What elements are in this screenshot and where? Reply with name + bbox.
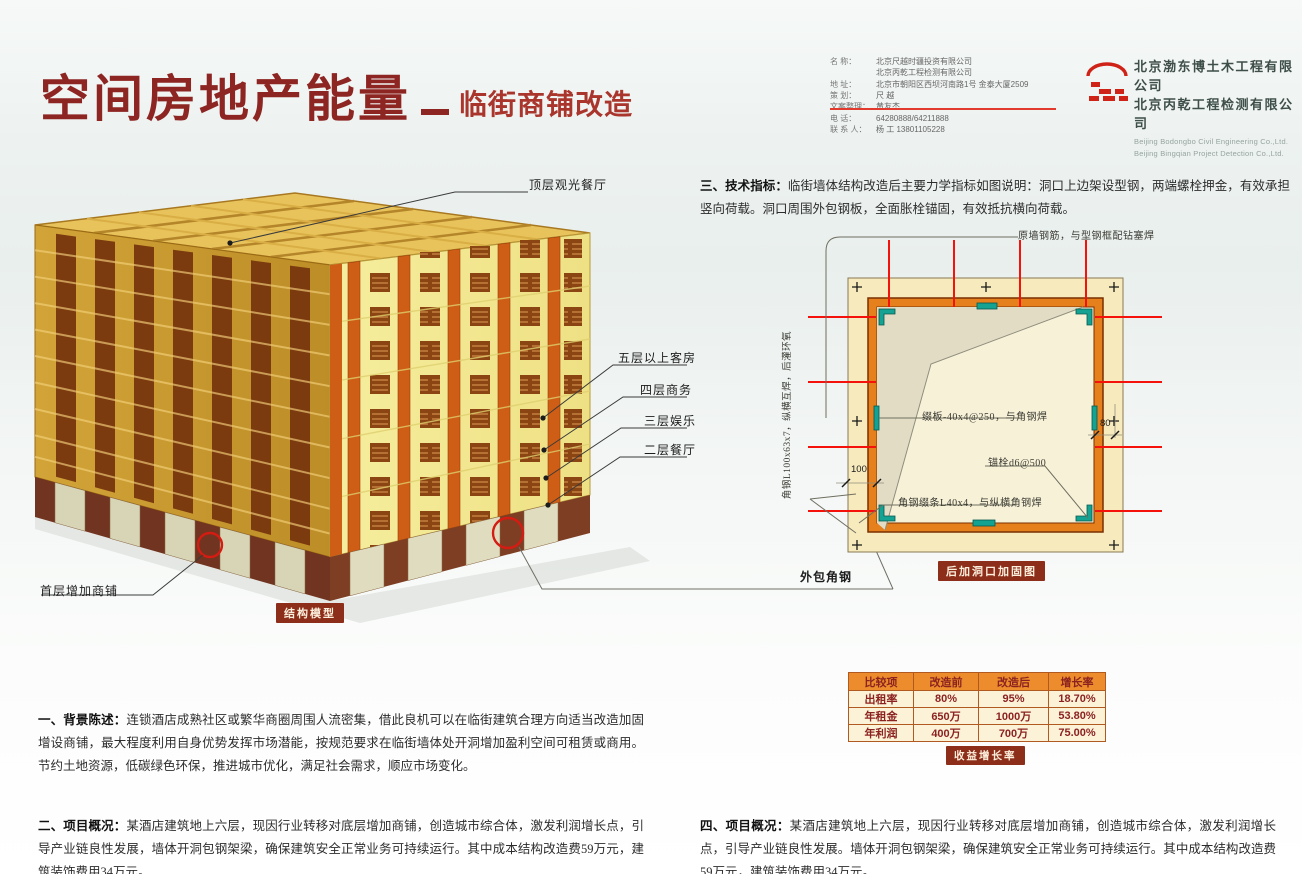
company-cn-1: 北京渤东博土木工程有限公司 (1134, 58, 1302, 96)
company-cn-2: 北京丙乾工程检测有限公司 (1134, 96, 1302, 134)
table-header-row: 比较项 改造前 改造后 增长率 (849, 673, 1106, 691)
tech-paragraph: 三、技术指标：临街墙体结构改造后主要力学指标如图说明：洞口上边架设型钢，两端螺栓… (700, 175, 1290, 220)
dim-80: 80 (1100, 418, 1111, 429)
col-header: 改造后 (979, 673, 1049, 691)
table-row: 出租率 80% 95% 18.70% (849, 691, 1106, 708)
section1-body: 连锁酒店成熟社区或繁华商圈周围人流密集，借此良机可以在临街建筑合理方向适当改造加… (38, 713, 644, 773)
info-row: 联 系 人：杨 工 13801105228 (830, 124, 1058, 135)
dim-100: 100 (851, 464, 867, 475)
info-value: 北京尺越时疆投资有限公司 (876, 56, 972, 67)
cell: 700万 (979, 725, 1049, 742)
company-logo-icon (1084, 56, 1130, 106)
cell: 53.80% (1049, 708, 1106, 725)
cell: 18.70% (1049, 691, 1106, 708)
table-caption: 收益增长率 (946, 746, 1025, 765)
tech-heading: 三、技术指标： (700, 179, 788, 193)
table-row: 年利润 400万 700万 75.00% (849, 725, 1106, 742)
info-value: 北京丙乾工程检测有限公司 (876, 67, 972, 78)
page-title: 空间房地产能量 (40, 74, 411, 124)
info-underline (830, 108, 1056, 110)
cell: 1000万 (979, 708, 1049, 725)
label-floor4: 四层商务 (640, 381, 692, 398)
info-row: 北京丙乾工程检测有限公司 (830, 67, 1058, 78)
ann-angle-steel-vertical: 角钢L100x63x7，纵横互焊，后灌环氧 (779, 265, 793, 565)
section2-heading: 二、项目概况： (38, 819, 126, 833)
cell: 75.00% (1049, 725, 1106, 742)
col-header: 比较项 (849, 673, 914, 691)
info-value: 64280888/64211888 (876, 113, 949, 124)
info-row: 策 划：尺 越 (830, 90, 1058, 101)
poster-root: 空间房地产能量 临街商铺改造 名 称：北京尺越时疆投资有限公司 北京丙乾工程检测… (0, 0, 1302, 874)
info-value: 杨 工 13801105228 (876, 124, 945, 135)
reinforcement-diagram (780, 220, 1200, 582)
corner-pilaster (330, 264, 342, 558)
page-title-group: 空间房地产能量 临街商铺改造 (40, 74, 633, 124)
ann-lacing-bar: 角钢缀条L40x4，与纵横角钢焊 (898, 494, 1042, 509)
section1-heading: 一、背景陈述： (38, 713, 126, 727)
cell: 400万 (914, 725, 979, 742)
info-row: 名 称：北京尺越时疆投资有限公司 (830, 56, 1058, 67)
label-floor3: 三层娱乐 (644, 412, 696, 429)
company-en-1: Beijing Bodongbo Civil Engineering Co.,L… (1134, 136, 1302, 147)
label-ground-floor: 首层增加商铺 (40, 582, 118, 599)
section-background: 一、背景陈述：连锁酒店成熟社区或繁华商圈周围人流密集，借此良机可以在临街建筑合理… (38, 709, 644, 778)
publisher-info: 名 称：北京尺越时疆投资有限公司 北京丙乾工程检测有限公司 地 址：北京市朝阳区… (830, 56, 1058, 136)
info-row: 地 址：北京市朝阳区西坝河南路1号 金泰大厦2509 (830, 79, 1058, 90)
info-value: 尺 越 (876, 90, 894, 101)
col-header: 改造前 (914, 673, 979, 691)
page-subtitle: 临街商铺改造 (459, 91, 633, 122)
cell: 95% (979, 691, 1049, 708)
label-top-floor: 顶层观光餐厅 (529, 176, 607, 193)
label-floor2: 二层餐厅 (644, 441, 696, 458)
company-names: 北京渤东博土木工程有限公司 北京丙乾工程检测有限公司 Beijing Bodon… (1134, 58, 1302, 159)
section-project4: 四、项目概况：某酒店建筑地上六层，现因行业转移对底层增加商铺，创造城市综合体，激… (700, 815, 1276, 874)
diagram-caption: 后加洞口加固图 (938, 561, 1045, 581)
cell: 年租金 (849, 708, 914, 725)
model-caption: 结构模型 (276, 603, 344, 623)
info-row: 电 话：64280888/64211888 (830, 113, 1058, 124)
comparison-table: 比较项 改造前 改造后 增长率 出租率 80% 95% 18.70% 年租金 6… (848, 672, 1106, 742)
building-model-illustration (10, 165, 910, 645)
cell: 出租率 (849, 691, 914, 708)
ann-original-rebar: 原墙钢筋，与型钢框配钻塞焊 (1018, 227, 1155, 242)
section-project2: 二、项目概况：某酒店建筑地上六层，现因行业转移对底层增加商铺，创造城市综合体，激… (38, 815, 644, 874)
ann-anchor-bolt: 锚栓d6@500 (988, 454, 1046, 469)
cell: 650万 (914, 708, 979, 725)
label-floor5: 五层以上客房 (618, 349, 696, 366)
tech-body: 临街墙体结构改造后主要力学指标如图说明：洞口上边架设型钢，两端螺栓押金，有效承担… (700, 179, 1290, 216)
col-header: 增长率 (1049, 673, 1106, 691)
section2-body: 某酒店建筑地上六层，现因行业转移对底层增加商铺，创造城市综合体，激发利润增长点，… (38, 819, 644, 874)
section4-heading: 四、项目概况： (700, 819, 790, 833)
table-row: 年租金 650万 1000万 53.80% (849, 708, 1106, 725)
ann-batten-plate: 缀板-40x4@250，与角钢焊 (922, 408, 1048, 423)
info-value: 北京市朝阳区西坝河南路1号 金泰大厦2509 (876, 79, 1028, 90)
company-en-2: Beijing Bingqian Project Detection Co.,L… (1134, 148, 1302, 159)
cell: 年利润 (849, 725, 914, 742)
title-dash (421, 109, 449, 115)
cell: 80% (914, 691, 979, 708)
